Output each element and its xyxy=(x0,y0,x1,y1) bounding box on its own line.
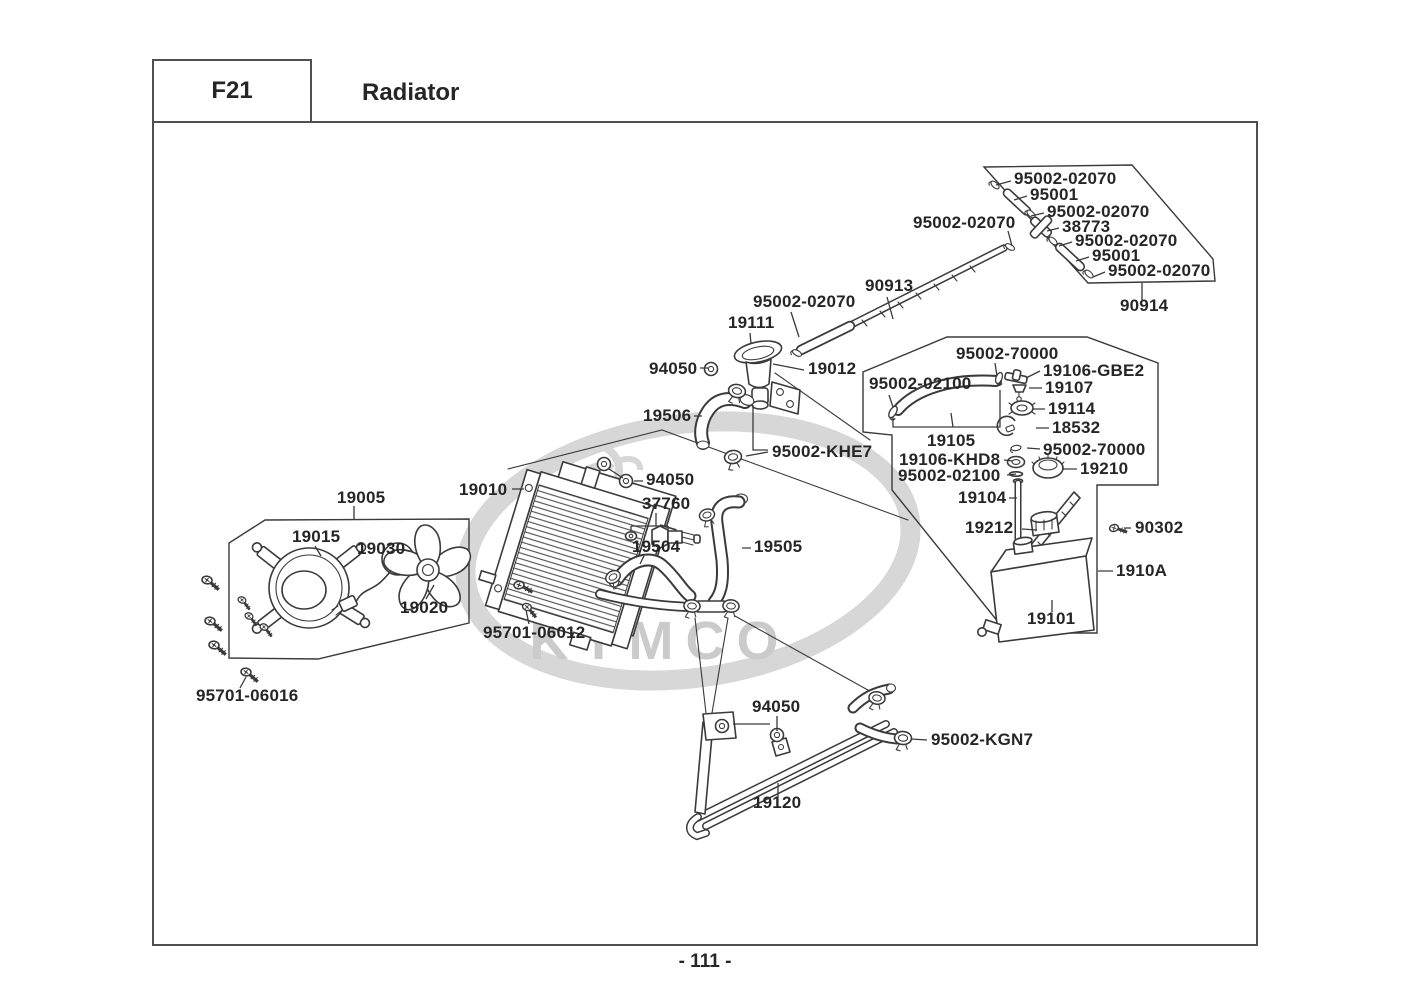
bypass-hose-drawing xyxy=(698,494,747,602)
tank-fittings-drawing xyxy=(997,368,1064,478)
grommet-94050-a xyxy=(598,458,611,471)
reserve-hose-drawing xyxy=(887,372,1006,421)
fan-shroud-drawing xyxy=(250,540,372,636)
region-outline-overflow-kit xyxy=(984,165,1215,283)
tank-cap-19210 xyxy=(1032,455,1064,478)
pipe-end-hoses xyxy=(853,684,912,752)
fan-mount-bolts xyxy=(201,576,275,682)
overflow-tube-kit-drawing xyxy=(988,179,1094,280)
bottle-neck-small xyxy=(1013,536,1032,554)
parts-diagram-svg: KYMCO xyxy=(0,0,1415,1000)
siphon-tube-drawing xyxy=(790,242,1016,359)
lower-pipe-drawing xyxy=(690,684,912,836)
tank-screw-90302 xyxy=(1109,522,1127,536)
bottle-neck-large xyxy=(1030,510,1059,535)
catalog-page: F21 Radiator xyxy=(0,0,1415,1000)
page-number: - 111 - xyxy=(152,951,1258,973)
grommet-94050-top xyxy=(705,363,718,376)
leader-lines xyxy=(240,181,1142,797)
